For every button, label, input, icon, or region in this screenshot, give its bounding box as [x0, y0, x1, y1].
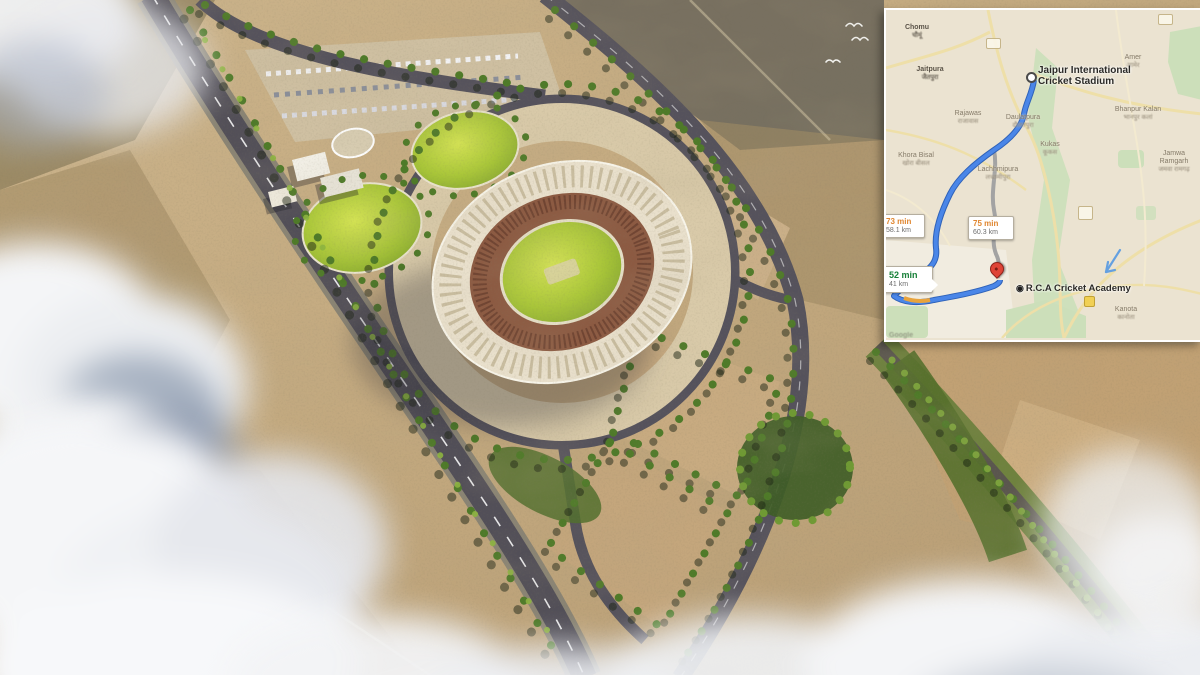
road-shield-icon: [1078, 206, 1093, 220]
route-badge-alternate1: 73 min 58.1 km: [884, 214, 925, 238]
destination-ring-icon: ◉: [1016, 283, 1024, 293]
origin-label: Jaipur International Cricket Stadium: [1038, 66, 1158, 88]
route-badge-alternate2: 75 min 60.3 km: [968, 216, 1014, 240]
map-place-chomu: Chomuचौमूं: [905, 24, 929, 40]
map-place-jamwa-ramgarh: Jamwa Ramgarhजमवा रामगढ़: [1152, 150, 1196, 174]
map-place-kukas: Kukasकूकस: [1040, 141, 1059, 157]
destination-label: ◉R.C.A Cricket Academy: [1016, 284, 1131, 294]
road-shield-yellow-icon: [1084, 296, 1095, 307]
map-place-lachhmipura: Lachhmipuraलच्छमीपुरा: [978, 166, 1018, 182]
route-badge-selected: 52 min 41 km: [884, 266, 933, 293]
aerial-render-scene: Chomuचौमूं Jaitpuraजैतपुरा Amerआमेर Bhan…: [0, 0, 1200, 675]
map-watermark: Google: [889, 332, 913, 339]
map-place-rajawas: Rajawasराजावास: [955, 110, 982, 126]
origin-marker-icon: [1026, 72, 1037, 83]
map-inset: Chomuचौमूं Jaitpuraजैतपुरा Amerआमेर Bhan…: [884, 8, 1200, 342]
map-place-khora-bisal: Khora Bisalखोरा बीसल: [898, 152, 934, 168]
map-place-kanota: Kanotaकानोता: [1115, 306, 1137, 322]
road-shield-icon: [986, 38, 1001, 49]
map-place-daulatpura: Daulatpuraदौलतपुरा: [1006, 114, 1040, 130]
road-shield-icon: [1158, 14, 1173, 25]
map-place-bhanpur-kalan: Bhanpur Kalanभानपुर कलां: [1115, 106, 1161, 122]
map-place-jaitpura: Jaitpuraजैतपुरा: [916, 66, 943, 82]
